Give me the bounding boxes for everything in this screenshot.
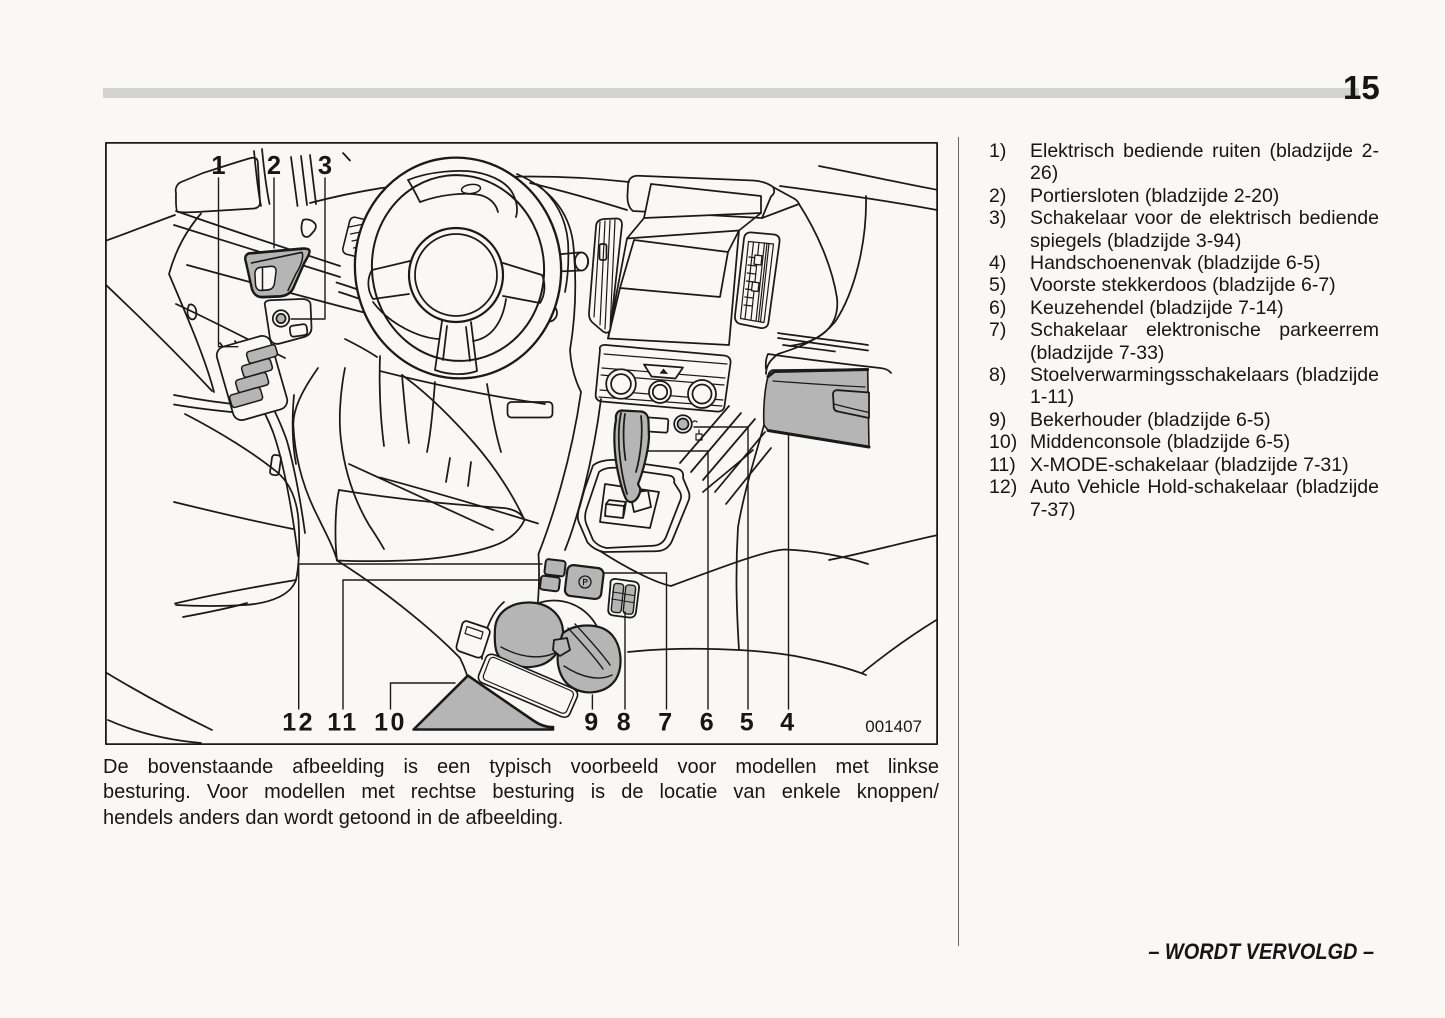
- svg-text:10: 10: [374, 709, 407, 737]
- svg-text:001407: 001407: [865, 717, 922, 736]
- svg-text:11: 11: [327, 709, 358, 737]
- svg-text:5: 5: [740, 709, 756, 737]
- svg-text:9: 9: [584, 709, 600, 737]
- svg-text:8: 8: [617, 709, 633, 737]
- svg-text:12: 12: [282, 709, 315, 737]
- svg-text:7: 7: [658, 709, 674, 737]
- svg-text:2: 2: [267, 152, 281, 180]
- svg-text:3: 3: [318, 152, 332, 180]
- svg-text:4: 4: [780, 709, 796, 737]
- svg-text:6: 6: [700, 709, 716, 737]
- svg-text:1: 1: [211, 152, 225, 180]
